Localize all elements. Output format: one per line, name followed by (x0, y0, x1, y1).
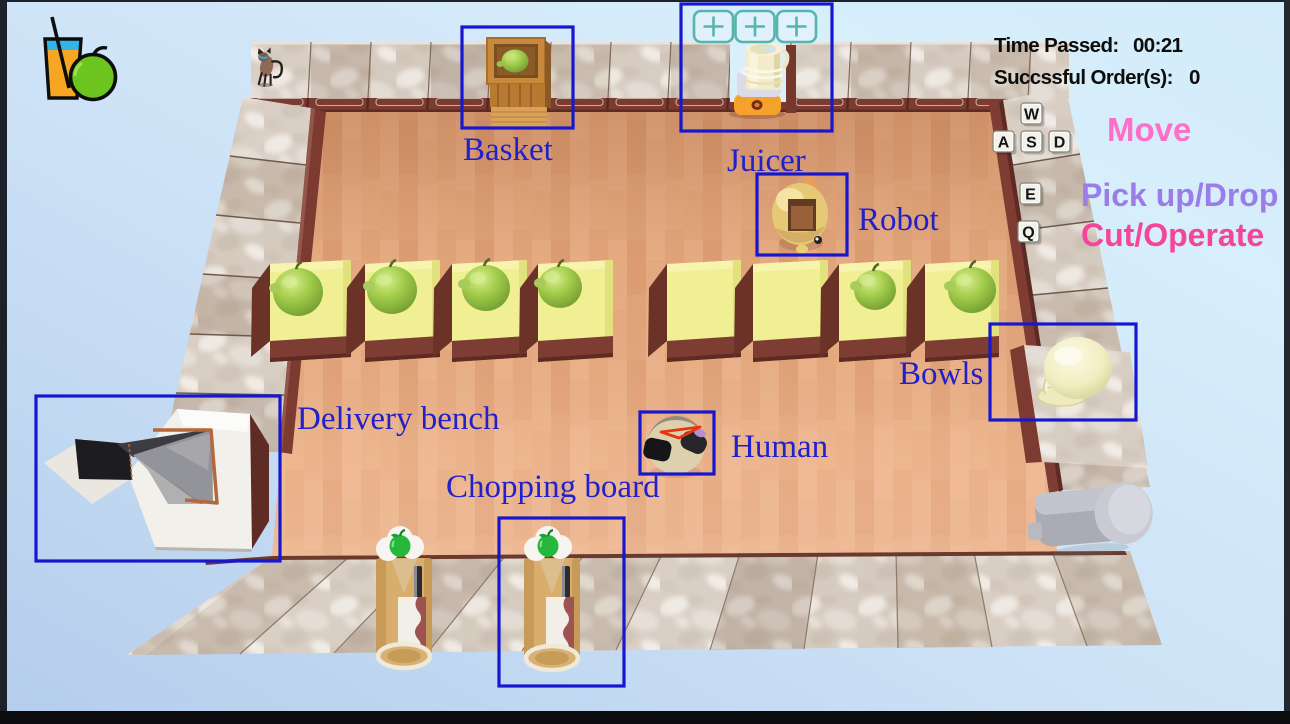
svg-text:Move: Move (1107, 111, 1191, 148)
svg-text:0: 0 (1189, 66, 1200, 89)
svg-text:Delivery bench: Delivery bench (297, 401, 500, 437)
svg-text:Juicer: Juicer (727, 143, 806, 179)
svg-text:Pick up/Drop: Pick up/Drop (1081, 177, 1278, 213)
svg-text:S: S (1026, 135, 1037, 152)
svg-text:Succssful Order(s):: Succssful Order(s): (994, 66, 1173, 89)
svg-text:00:21: 00:21 (1133, 34, 1183, 57)
svg-text:Time Passed:: Time Passed: (994, 34, 1119, 57)
svg-text:Robot: Robot (858, 202, 939, 238)
svg-text:Cut/Operate: Cut/Operate (1081, 217, 1264, 253)
svg-text:Bowls: Bowls (899, 356, 983, 392)
svg-text:Basket: Basket (463, 132, 553, 168)
svg-text:Q: Q (1022, 225, 1034, 242)
svg-text:Chopping board: Chopping board (446, 469, 660, 505)
svg-text:Human: Human (731, 429, 828, 465)
svg-text:A: A (998, 135, 1010, 152)
svg-text:D: D (1054, 135, 1066, 152)
svg-text:E: E (1025, 187, 1036, 204)
svg-text:W: W (1024, 107, 1040, 124)
